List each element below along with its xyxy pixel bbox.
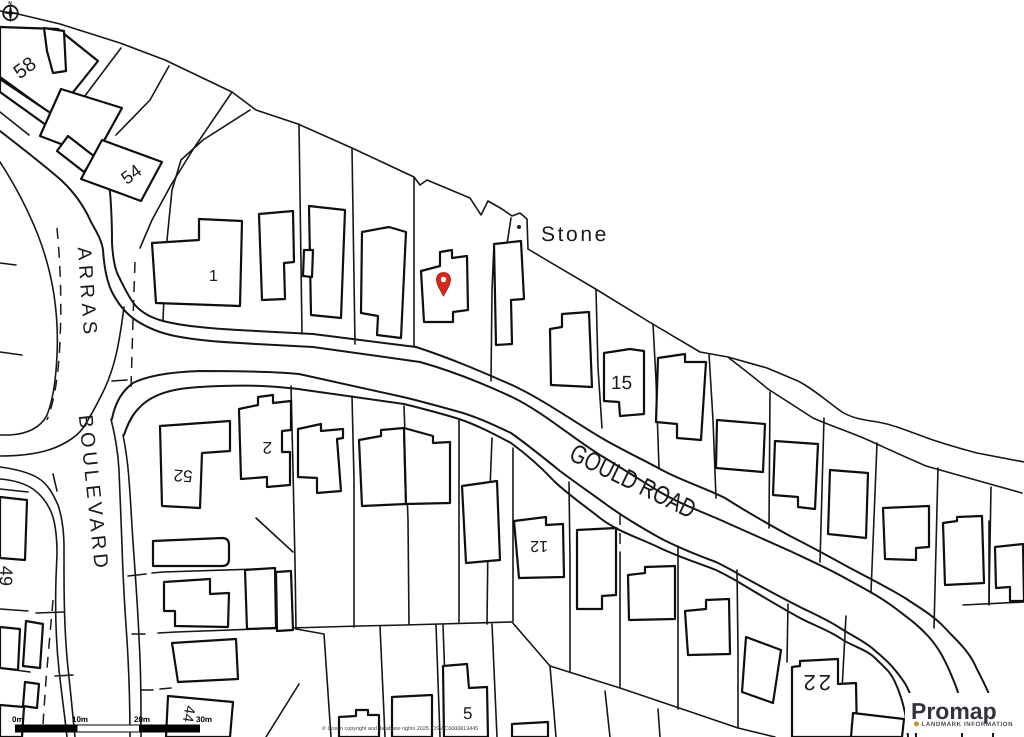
svg-text:49: 49 bbox=[0, 566, 16, 587]
svg-text:1: 1 bbox=[209, 268, 218, 285]
svg-text:30m: 30m bbox=[196, 715, 212, 724]
svg-text:22: 22 bbox=[801, 670, 831, 695]
svg-text:Promap: Promap bbox=[911, 698, 997, 724]
svg-text:52: 52 bbox=[173, 465, 193, 485]
svg-text:12: 12 bbox=[530, 537, 548, 554]
svg-text:2: 2 bbox=[263, 438, 272, 457]
svg-text:0m: 0m bbox=[12, 715, 24, 724]
svg-text:Stone: Stone bbox=[541, 223, 609, 246]
svg-text:N: N bbox=[8, 1, 12, 7]
svg-text:LANDMARK INFORMATION: LANDMARK INFORMATION bbox=[922, 721, 1014, 728]
svg-text:20m: 20m bbox=[134, 715, 150, 724]
svg-text:15: 15 bbox=[611, 373, 632, 394]
svg-text:© Crown copyright and database: © Crown copyright and database rights 20… bbox=[322, 726, 478, 732]
svg-text:10m: 10m bbox=[72, 715, 88, 724]
svg-text:5: 5 bbox=[463, 704, 472, 723]
